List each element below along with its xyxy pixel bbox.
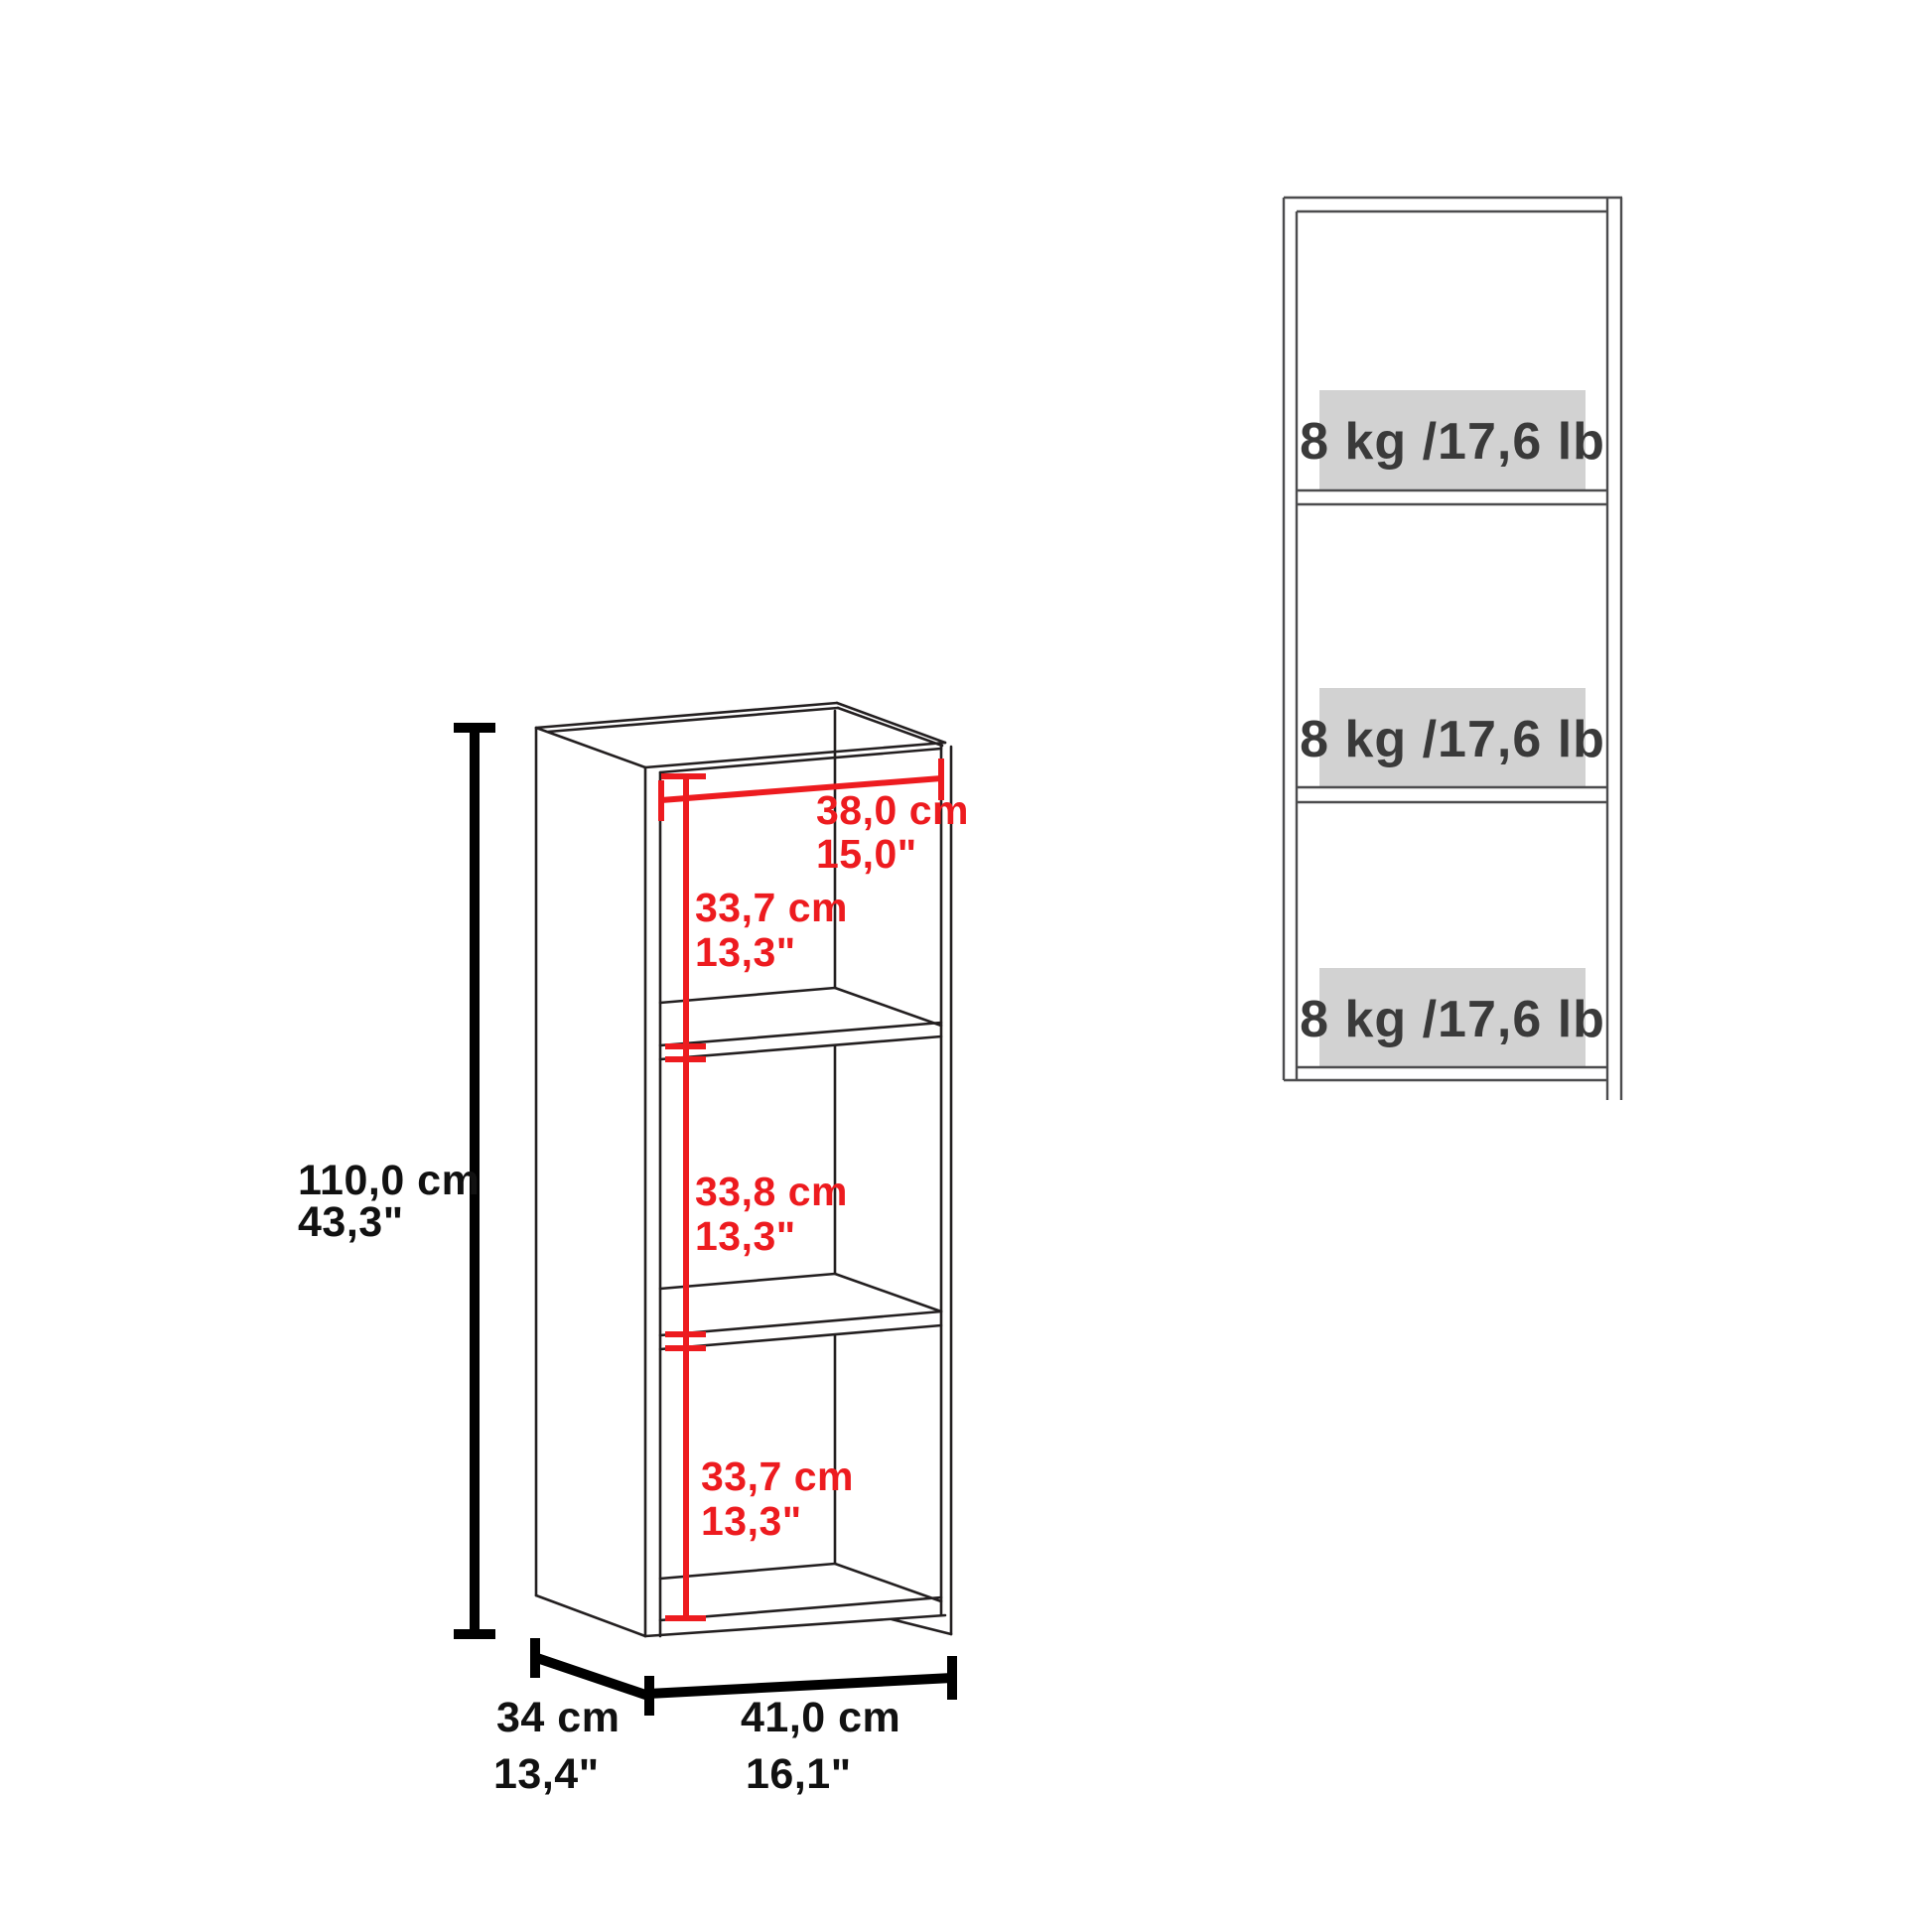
middle-compartment-label-cm: 33,8 cm: [695, 1169, 848, 1214]
width-label-in: 16,1": [746, 1750, 852, 1798]
shelf-2: [660, 1274, 941, 1349]
capacity-label-top: 8 kg /17,6 lb: [1300, 413, 1605, 471]
top-compartment-label-in: 13,3": [695, 929, 796, 975]
width-label-cm: 41,0 cm: [741, 1694, 900, 1741]
height-label-in: 43,3": [298, 1198, 404, 1246]
opening-top-edge: [660, 749, 941, 772]
depth-dim-line: [537, 1658, 648, 1696]
bookcase-front-view: 8 kg /17,6 lb 8 kg /17,6 lb 8 kg /17,6 l…: [1284, 198, 1622, 1100]
inner-width-label-cm: 38,0 cm: [816, 787, 969, 833]
inner-width-label-in: 15,0": [816, 831, 917, 877]
diagram-svg: 110,0 cm 43,3" 38,0 cm 15,0" 33,7 cm 13,…: [0, 0, 1932, 1932]
right-bottom-edge: [892, 1619, 951, 1634]
capacity-label-middle: 8 kg /17,6 lb: [1300, 711, 1605, 768]
top-compartment-label-cm: 33,7 cm: [695, 885, 848, 930]
bottom-compartment-label-in: 13,3": [701, 1498, 802, 1544]
capacity-labels: 8 kg /17,6 lb 8 kg /17,6 lb 8 kg /17,6 l…: [1300, 413, 1605, 1048]
front-view-frame: [1284, 198, 1622, 1100]
depth-label-cm: 34 cm: [496, 1694, 620, 1741]
dimension-diagram-page: 110,0 cm 43,3" 38,0 cm 15,0" 33,7 cm 13,…: [0, 0, 1932, 1932]
bottom-compartment-label-cm: 33,7 cm: [701, 1453, 854, 1499]
left-bottom-edge: [536, 1595, 645, 1636]
capacity-label-bottom: 8 kg /17,6 lb: [1300, 991, 1605, 1048]
height-label-cm: 110,0 cm: [298, 1157, 480, 1204]
top-panel: [536, 703, 945, 767]
middle-compartment-label-in: 13,3": [695, 1213, 796, 1259]
width-dim-line: [648, 1678, 952, 1694]
depth-label-in: 13,4": [493, 1750, 600, 1798]
bookcase-isometric-view: 110,0 cm 43,3" 38,0 cm 15,0" 33,7 cm 13,…: [298, 703, 969, 1798]
